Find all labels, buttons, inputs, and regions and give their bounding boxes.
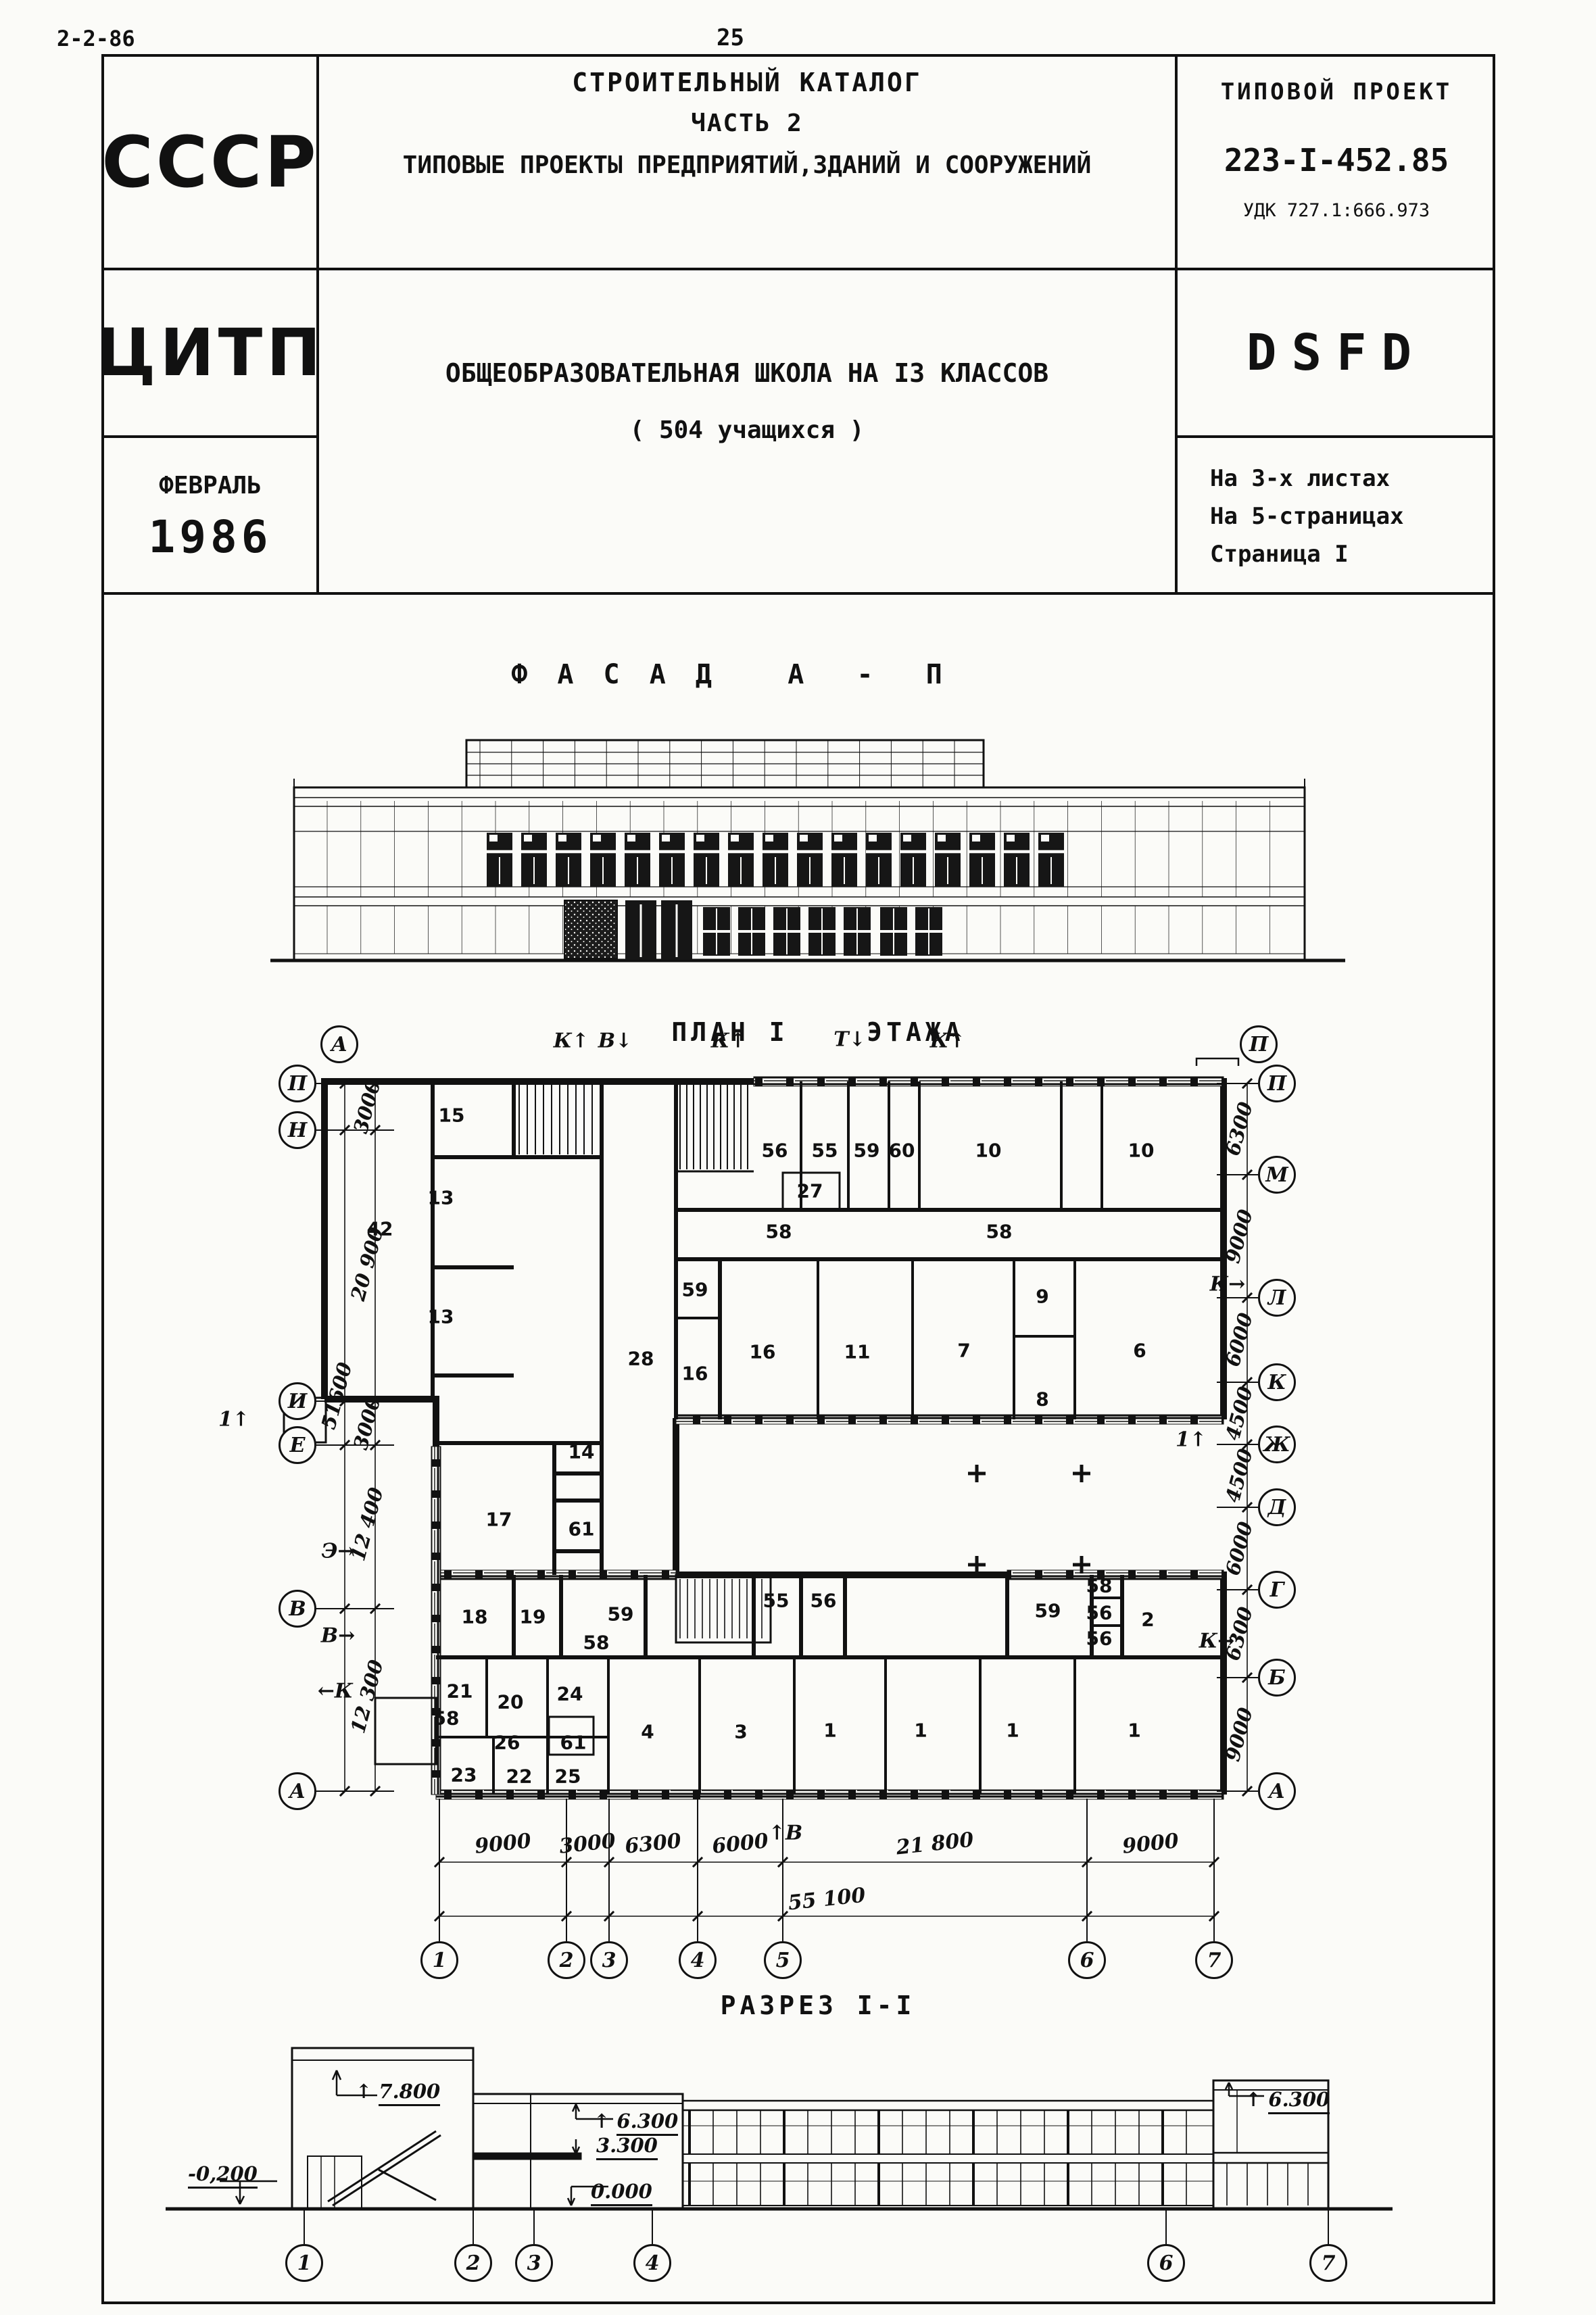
subject-line2: ( 504 учащихся ): [319, 416, 1175, 444]
dimension-label: 6000: [711, 1829, 770, 1859]
dimension-label: 9000: [1121, 1829, 1180, 1859]
room-number: 1: [914, 1720, 927, 1742]
section-cut-mark: К↑: [554, 1029, 589, 1053]
axis-leader-line: [1217, 1790, 1258, 1792]
room-number: 14: [569, 1441, 595, 1463]
elevation-value: 3.300: [596, 2134, 658, 2160]
plan-column-bubble: 3: [590, 1941, 628, 1979]
column-stem-line: [1165, 2209, 1167, 2244]
room-number: 59: [608, 1603, 634, 1626]
room-number: 55: [763, 1590, 790, 1612]
section-cut-mark: ↑В: [769, 1822, 803, 1845]
dimension-label: 9000: [474, 1829, 533, 1859]
room-number: 23: [451, 1764, 477, 1786]
room-number: 10: [975, 1140, 1002, 1162]
column-stem-line: [652, 2209, 653, 2244]
plan-column-bubble: 2: [548, 1941, 585, 1979]
room-number: 61: [560, 1732, 587, 1754]
plan-axis-bubble-left: В: [279, 1590, 316, 1628]
column-stem-line: [1328, 2209, 1329, 2244]
dimension-label: 4500: [1221, 1446, 1257, 1505]
dimension-label: 9000: [1221, 1705, 1257, 1764]
elevation-label: ↑ 7.800: [356, 2080, 440, 2103]
room-number: 42: [367, 1218, 393, 1240]
axis-leader-line: [316, 1790, 394, 1792]
issue-year: 1986: [104, 511, 316, 563]
org-stamp-citp: ЦИТП: [104, 270, 316, 435]
elevation-arrow: ↑: [356, 2080, 379, 2103]
project-number: 223-I-452.85: [1178, 142, 1495, 178]
room-number: 6: [1133, 1340, 1146, 1362]
section-cut-mark: В→: [321, 1624, 356, 1648]
plan-axis-bubble-right: Л: [1258, 1279, 1296, 1317]
room-number: 56: [1086, 1602, 1113, 1624]
section-cut-mark: 1↑: [1176, 1428, 1207, 1452]
column-stem-line: [304, 2209, 305, 2244]
plan-axis-bubble-right: К: [1258, 1363, 1296, 1401]
plan-axis-bubble-right: Б: [1258, 1659, 1296, 1697]
plan-axis-bubble-right: Г: [1258, 1571, 1296, 1609]
elevation-label: ↑ 6.300: [1245, 2088, 1330, 2111]
room-number: 56: [1086, 1628, 1113, 1650]
axis-leader-line: [1217, 1297, 1258, 1298]
room-number: 8: [1036, 1388, 1048, 1411]
section-cut-mark: Т↓: [833, 1028, 865, 1052]
room-number: 60: [889, 1140, 915, 1162]
plan-axis-bubble-right: М: [1258, 1156, 1296, 1194]
dimension-label: 4500: [1221, 1384, 1257, 1443]
plan-axis-bubble-left: Н: [279, 1111, 316, 1149]
corner-code: 2-2-86: [57, 26, 135, 51]
titleblock-divider: [1175, 435, 1495, 438]
room-number: 1: [823, 1720, 836, 1742]
room-number: 2: [1141, 1609, 1154, 1631]
elevation-label: -0,200: [188, 2162, 258, 2185]
plan-column-bubble: 6: [1068, 1941, 1106, 1979]
elevation-value: 6.300: [616, 2110, 678, 2136]
dimension-label: 9000: [1221, 1207, 1257, 1266]
elevation-arrow: ↑: [594, 2110, 616, 2133]
stamp-dsfd: DSFD: [1178, 270, 1495, 435]
issue-month: ФЕВРАЛЬ: [104, 472, 316, 499]
section-cut-mark: К↑: [711, 1029, 746, 1053]
subject-line1: ОБЩЕОБРАЗОВАТЕЛЬНАЯ ШКОЛА НА I3 КЛАССОВ: [319, 358, 1175, 388]
room-number: 55: [812, 1140, 838, 1162]
column-stem-line: [608, 1799, 610, 1941]
facade-axis-bubble: А: [320, 1025, 358, 1063]
overall-dimension: 51600: [317, 1360, 357, 1432]
plan-column-bubble: 4: [679, 1941, 717, 1979]
elevation-label: 3.300: [596, 2134, 658, 2157]
column-stem-line: [697, 1799, 698, 1941]
room-number: 16: [682, 1363, 708, 1385]
room-number: 19: [520, 1606, 546, 1628]
room-number: 26: [494, 1732, 521, 1754]
room-number: 58: [986, 1221, 1013, 1243]
plan-axis-bubble-left: П: [279, 1065, 316, 1102]
column-stem-line: [782, 1799, 783, 1941]
plan-column-bubble: 7: [1195, 1941, 1233, 1979]
dimension-label: 6000: [1221, 1519, 1257, 1578]
section-column-bubble: 6: [1147, 2244, 1185, 2282]
room-number: 1: [1006, 1720, 1019, 1742]
room-number: 1: [1128, 1720, 1140, 1742]
plan-column-bubble: 1: [420, 1941, 458, 1979]
section-column-bubble: 2: [454, 2244, 492, 2282]
elevation-label: 0.000: [591, 2180, 652, 2203]
elevation-arrow: ↑: [1245, 2088, 1268, 2111]
room-number: 58: [766, 1221, 792, 1243]
room-number: 4: [641, 1721, 654, 1743]
elevation-value: 7.800: [379, 2080, 440, 2106]
room-number: 59: [682, 1279, 708, 1301]
column-stem-line: [1213, 1799, 1215, 1941]
room-number: 18: [462, 1606, 488, 1628]
column-stem-line: [566, 1799, 567, 1941]
plan-axis-bubble-right: П: [1258, 1065, 1296, 1102]
plan-axis-bubble-left: А: [279, 1772, 316, 1810]
section-column-bubble: 7: [1309, 2244, 1347, 2282]
titleblock-divider: [101, 435, 319, 438]
room-number: 59: [854, 1140, 880, 1162]
section-column-bubble: 4: [633, 2244, 671, 2282]
sheets-info-1: На 3-х листах: [1210, 465, 1390, 492]
elevation-value: 6.300: [1268, 2088, 1330, 2114]
section-cut-mark: В↓: [598, 1029, 633, 1053]
room-number: 59: [1035, 1600, 1061, 1622]
axis-leader-line: [1217, 1083, 1258, 1084]
catalog-title-line2: ЧАСТЬ 2: [319, 109, 1175, 137]
room-number: 56: [811, 1590, 837, 1612]
section-annotations: ↑ 7.800↑ 6.3003.3000.000-0,200↑ 6.300123…: [155, 2031, 1399, 2315]
dimension-label: 6300: [624, 1829, 683, 1859]
titleblock-divider: [101, 592, 1495, 595]
room-number: 28: [628, 1348, 654, 1370]
room-number: 58: [433, 1707, 460, 1730]
elevation-label: ↑ 6.300: [594, 2110, 678, 2133]
plan-axis-bubble-left: Е: [279, 1426, 316, 1464]
elevation-value: 0.000: [591, 2180, 652, 2206]
section-cut-mark: Э→: [322, 1540, 355, 1563]
room-number: 24: [557, 1683, 583, 1705]
facade-axis-bubble: П: [1240, 1025, 1278, 1063]
sheets-info-3: Страница I: [1210, 541, 1349, 568]
plan-axis-bubble-right: А: [1258, 1772, 1296, 1810]
room-number: 10: [1128, 1140, 1155, 1162]
axis-leader-line: [1217, 1677, 1258, 1678]
room-number: 13: [428, 1187, 454, 1209]
org-stamp-ussr: СССР: [104, 57, 316, 268]
room-number: 58: [1086, 1575, 1113, 1597]
catalog-sheet: 2-2-86 25 СССР СТРОИТЕЛЬНЫЙ КАТАЛОГ ЧАСТ…: [0, 0, 1596, 2315]
section-column-bubble: 3: [515, 2244, 553, 2282]
room-number: 15: [439, 1104, 465, 1127]
room-number: 25: [555, 1765, 581, 1788]
axis-leader-line: [1217, 1382, 1258, 1383]
section-cut-mark: ←К: [318, 1680, 353, 1703]
project-type-label: ТИПОВОЙ ПРОЕКТ: [1178, 78, 1495, 105]
section-cut-mark: 1↑: [218, 1408, 249, 1432]
room-number: 7: [957, 1340, 970, 1362]
axis-leader-line: [1217, 1174, 1258, 1175]
axis-leader-line: [1217, 1507, 1258, 1508]
plan-axis-bubble-left: И: [279, 1382, 316, 1420]
room-number: 9: [1036, 1286, 1048, 1308]
room-number: 16: [750, 1341, 776, 1363]
plan-axis-bubble-right: Ж: [1258, 1425, 1296, 1463]
room-number: 58: [583, 1632, 610, 1654]
facade-title: Ф А С А Д А - П: [473, 659, 987, 690]
room-number: 61: [569, 1518, 595, 1540]
sheets-info-2: На 5-страницах: [1210, 503, 1404, 530]
floor-plan-annotations: ПНИЕВАПМЛКЖДГБА51600300020 900300012 400…: [203, 1000, 1406, 1980]
axis-leader-line: [1217, 1444, 1258, 1445]
overall-dimension: 55 100: [787, 1884, 867, 1916]
plan-axis-bubble-right: Д: [1258, 1488, 1296, 1526]
room-number: 22: [506, 1765, 533, 1788]
dimension-label: 21 800: [895, 1828, 975, 1860]
elevation-value: -0,200: [188, 2162, 258, 2189]
room-number: 17: [486, 1509, 512, 1531]
dimension-label: 3000: [349, 1394, 385, 1453]
room-number: 3: [734, 1721, 747, 1743]
catalog-title-line3: ТИПОВЫЕ ПРОЕКТЫ ПРЕДПРИЯТИЙ,ЗДАНИЙ И СОО…: [319, 151, 1175, 179]
column-stem-line: [473, 2209, 474, 2244]
section-cut-mark: К→: [1210, 1273, 1245, 1296]
room-number: 20: [498, 1691, 524, 1713]
dimension-label: 3000: [349, 1077, 385, 1136]
room-number: 13: [428, 1306, 454, 1328]
plan-column-bubble: 5: [764, 1941, 802, 1979]
section-title: РАЗРЕЗ I-I: [608, 1991, 1027, 2020]
axis-leader-line: [316, 1608, 394, 1609]
axis-leader-line: [1217, 1589, 1258, 1590]
room-number: 27: [797, 1180, 823, 1202]
section-column-bubble: 1: [285, 2244, 323, 2282]
column-stem-line: [439, 1799, 440, 1941]
column-stem-line: [533, 2209, 535, 2244]
dimension-label: 6000: [1221, 1311, 1257, 1369]
section-cut-mark: К→: [1199, 1630, 1234, 1653]
udk-code: УДК 727.1:666.973: [1178, 200, 1495, 221]
catalog-title-line1: СТРОИТЕЛЬНЫЙ КАТАЛОГ: [319, 68, 1175, 97]
section-cut-mark: К↑: [930, 1029, 965, 1053]
room-number: 56: [762, 1140, 788, 1162]
room-number: 11: [844, 1341, 871, 1363]
column-stem-line: [1086, 1799, 1088, 1941]
room-number: 21: [447, 1680, 473, 1703]
dimension-label: 6300: [1221, 1100, 1257, 1159]
page-number: 25: [717, 24, 744, 51]
